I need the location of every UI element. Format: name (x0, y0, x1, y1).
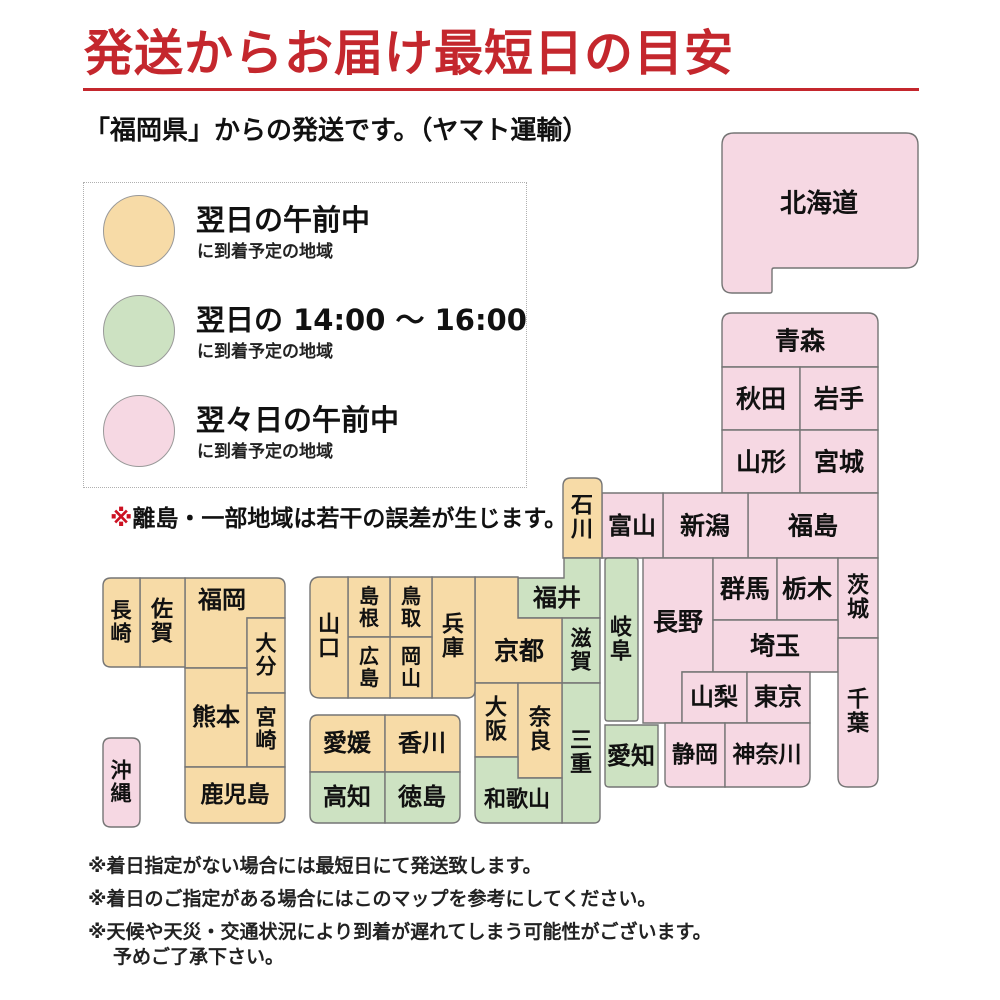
pref-tokushima-label: 徳島 (397, 783, 446, 811)
pref-aomori-label: 青森 (775, 327, 826, 356)
pref-miyagi: 宮城 (800, 430, 878, 493)
pref-mie: 三重 (562, 683, 600, 823)
pref-aichi: 愛知 (605, 725, 658, 787)
pref-ibaraki-label: 茨城 (847, 574, 869, 623)
footnote-2: ※着日のご指定がある場合にはこのマップを参考にしてください。 (88, 884, 656, 911)
pref-niigata-label: 新潟 (680, 512, 730, 541)
footnote-4: 予めご了承下さい。 (113, 942, 284, 969)
pref-ehime: 愛媛 (310, 715, 385, 772)
pref-osaka-label: 大阪 (485, 696, 507, 745)
pref-kagoshima: 鹿児島 (185, 767, 285, 823)
pref-osaka: 大阪 (475, 683, 518, 757)
pref-gifu-label: 岐阜 (610, 616, 633, 665)
japan-delivery-map: 北海道青森秋田岩手山形宮城福島新潟富山石川長野群馬栃木茨城埼玉山梨東京千葉静岡神… (0, 0, 1000, 1000)
pref-oita-label: 大分 (256, 632, 277, 679)
pref-shiga-label: 滋賀 (570, 627, 592, 674)
pref-nara-label: 奈良 (528, 705, 552, 755)
pref-oita: 大分 (247, 618, 285, 693)
pref-fukushima: 福島 (748, 493, 878, 558)
pref-yamaguchi: 山口 (310, 577, 348, 698)
pref-fukui-label: 福井 (532, 584, 581, 612)
footnote-3: ※天候や天災・交通状況により到着が遅れてしまう可能性がございます。 (88, 917, 712, 944)
pref-saitama-label: 埼玉 (750, 632, 800, 661)
pref-tokyo-label: 東京 (754, 683, 802, 711)
pref-tochigi-label: 栃木 (782, 575, 832, 604)
pref-miyazaki: 宮崎 (247, 693, 285, 767)
pref-hokkaido-label: 北海道 (780, 188, 858, 219)
pref-yamaguchi-label: 山口 (318, 613, 340, 662)
pref-yamanashi: 山梨 (682, 672, 747, 723)
pref-kochi: 高知 (310, 772, 385, 823)
pref-tottori-label: 鳥取 (401, 584, 421, 630)
pref-saga-label: 佐賀 (150, 597, 173, 647)
pref-saga: 佐賀 (140, 578, 185, 667)
pref-ibaraki: 茨城 (838, 558, 878, 638)
pref-shiga: 滋賀 (562, 618, 600, 683)
pref-nagasaki: 長崎 (103, 578, 140, 667)
pref-hyogo: 兵庫 (432, 577, 475, 698)
pref-okinawa-label: 沖縄 (111, 759, 132, 806)
pref-kagoshima-label: 鹿児島 (201, 781, 270, 808)
pref-hokkaido: 北海道 (722, 133, 918, 293)
pref-kagawa-label: 香川 (398, 729, 446, 757)
pref-gunma: 群馬 (713, 558, 777, 620)
pref-tottori: 鳥取 (390, 577, 432, 637)
footnote-1: ※着日指定がない場合には最短日にて発送致します。 (88, 851, 542, 878)
pref-toyama-label: 富山 (608, 512, 656, 540)
pref-kanagawa: 神奈川 (725, 723, 810, 787)
pref-miyazaki-label: 宮崎 (256, 706, 277, 753)
pref-mie-label: 三重 (570, 729, 592, 778)
pref-chiba: 千葉 (838, 638, 878, 787)
pref-wakayama-label: 和歌山 (484, 787, 550, 813)
pref-gifu: 岐阜 (605, 558, 638, 721)
pref-tokushima: 徳島 (385, 772, 460, 823)
pref-aichi-label: 愛知 (607, 742, 655, 770)
pref-miyagi-label: 宮城 (814, 448, 864, 477)
pref-niigata: 新潟 (663, 493, 748, 558)
pref-kumamoto: 熊本 (185, 668, 247, 767)
pref-nagasaki-label: 長崎 (111, 599, 133, 646)
pref-shimane-label: 島根 (359, 584, 379, 630)
pref-yamagata: 山形 (722, 430, 800, 493)
pref-aomori: 青森 (722, 313, 878, 367)
pref-shizuoka-label: 静岡 (672, 741, 718, 768)
pref-hyogo-label: 兵庫 (442, 613, 464, 662)
pref-ishikawa: 石川 (563, 478, 602, 558)
pref-iwate: 岩手 (800, 367, 878, 430)
pref-nagano-label: 長野 (653, 608, 703, 637)
pref-shimane: 島根 (348, 577, 390, 637)
pref-fukushima-label: 福島 (787, 512, 838, 541)
pref-akita-label: 秋田 (736, 385, 786, 414)
pref-kyoto-label: 京都 (494, 637, 544, 666)
pref-tochigi: 栃木 (777, 558, 838, 620)
pref-kanagawa-label: 神奈川 (733, 741, 802, 768)
pref-ishikawa-label: 石川 (570, 494, 593, 543)
pref-okayama-label: 岡山 (401, 644, 421, 690)
pref-okinawa: 沖縄 (103, 738, 140, 827)
pref-shizuoka: 静岡 (665, 723, 725, 787)
pref-saitama: 埼玉 (713, 620, 838, 672)
pref-chiba-label: 千葉 (846, 688, 870, 737)
pref-hiroshima: 広島 (348, 637, 390, 698)
shipping-map-page: 発送からお届け最短日の目安 「福岡県」からの発送です。（ヤマト運輸） 翌日の午前… (0, 0, 1000, 1000)
pref-ehime-label: 愛媛 (323, 729, 372, 757)
pref-akita: 秋田 (722, 367, 800, 430)
pref-hiroshima-label: 広島 (359, 644, 379, 690)
pref-toyama: 富山 (602, 493, 663, 558)
pref-kochi-label: 高知 (323, 783, 371, 811)
pref-nara: 奈良 (518, 683, 562, 778)
pref-okayama: 岡山 (390, 637, 432, 698)
pref-yamagata-label: 山形 (736, 448, 786, 477)
pref-kagawa: 香川 (385, 715, 460, 772)
pref-tokyo: 東京 (747, 672, 810, 723)
pref-fukui: 福井 (518, 558, 600, 618)
pref-gunma-label: 群馬 (720, 575, 770, 604)
pref-kumamoto-label: 熊本 (192, 703, 240, 731)
pref-iwate-label: 岩手 (813, 385, 864, 414)
pref-fukuoka-label: 福岡 (197, 586, 246, 614)
pref-yamanashi-label: 山梨 (690, 683, 738, 711)
